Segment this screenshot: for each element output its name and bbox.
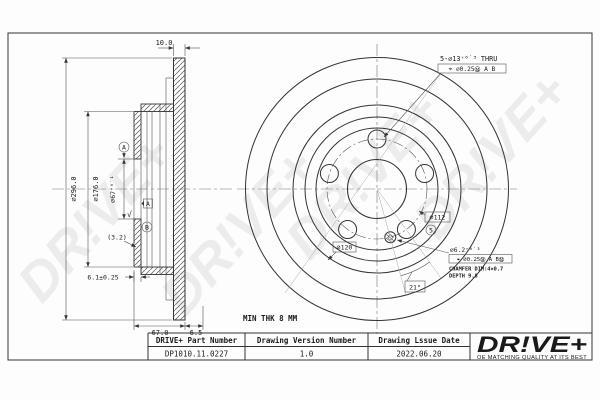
lug-hole-callout-text: 5-∅13⁺⁰˙³ THRU [440, 55, 497, 63]
brand-tagline: OE MATCHING QUALITY AT ITS BEST [477, 355, 587, 361]
dim-label-wall-ref: (3.2) [107, 234, 127, 242]
lug-hole-gdt-frame: ⌖ ∅0.25Ⓜ A B [449, 66, 496, 73]
issue-date-header: Drawing Lssue Date [378, 336, 460, 345]
version-value: 1.0 [300, 350, 314, 359]
dim-label-center-bore: ∅67⁺⁰˙¹ [109, 175, 117, 202]
roughness-symbol: √ [127, 210, 132, 219]
pin-hole-note2: DEPTH 9.8 [449, 274, 478, 280]
brand-logo-block: DR!VE+ OE MATCHING QUALITY AT ITS BEST [477, 332, 587, 361]
dim-label-hat-diameter: ∅176.0 [92, 176, 100, 201]
drawing-canvas: DR!VE+ DR!VE+ DR!VE+ DR!VE+ [0, 0, 600, 400]
friction-disc-section [174, 58, 186, 320]
hat-wall-lower [141, 267, 174, 275]
datum-b-label: B [145, 224, 149, 232]
dim-label-plate-thickness: 6.1±0.25 [87, 274, 118, 282]
dim-disc-thickness: 10.0 [156, 39, 200, 56]
front-view: 21° 5-∅13⁺⁰˙³ THRU ⌖ ∅0.25Ⓜ A B ∅112 5 ∅… [237, 44, 517, 334]
min-thickness-note: MIN THK 8 MM [243, 314, 298, 323]
inner-circle-label: ∅120 [337, 244, 353, 252]
issue-date-value: 2022.06.20 [396, 350, 442, 359]
hole-count-badge: 5 [429, 227, 433, 235]
pin-hole-note1: CHAMFER DIM:4×0.7 [449, 267, 503, 273]
brake-disc-technical-drawing: DR!VE+ DR!VE+ DR!VE+ DR!VE+ [0, 0, 600, 400]
hat-face-lower [134, 219, 141, 267]
angle-label: 21° [409, 283, 421, 291]
dim-label-outer-diameter: ∅296.0 [70, 176, 78, 201]
part-number-header: DRIVE+ Part Number [156, 336, 238, 345]
brand-logo: DR!VE+ [477, 332, 587, 357]
datum-a-label: A [122, 144, 126, 152]
datum-b-balloon: B [141, 222, 152, 232]
part-number-value: DP1010.11.0227 [165, 350, 228, 359]
pin-hole-diameter-text: ∅6.2⁺⁰˙³ [450, 246, 480, 254]
pin-hole-callout: ∅6.2⁺⁰˙³ ⌖ ∅0.25Ⓜ A BⓂ CHAMFER DIM:4×0.7… [397, 240, 512, 280]
title-block: DRIVE+ Part Number Drawing Version Numbe… [148, 332, 592, 361]
dim-label-thickness: 10.0 [156, 39, 173, 47]
pcd-label: ∅112 [430, 214, 446, 222]
pin-hole-gdt-frame: ⌖ ∅0.25Ⓜ A BⓂ [457, 257, 505, 263]
version-header: Drawing Version Number [257, 336, 357, 345]
hat-face-upper [134, 112, 141, 160]
hat-wall-upper [141, 104, 174, 112]
datum-a-flag-label: A [146, 200, 150, 208]
